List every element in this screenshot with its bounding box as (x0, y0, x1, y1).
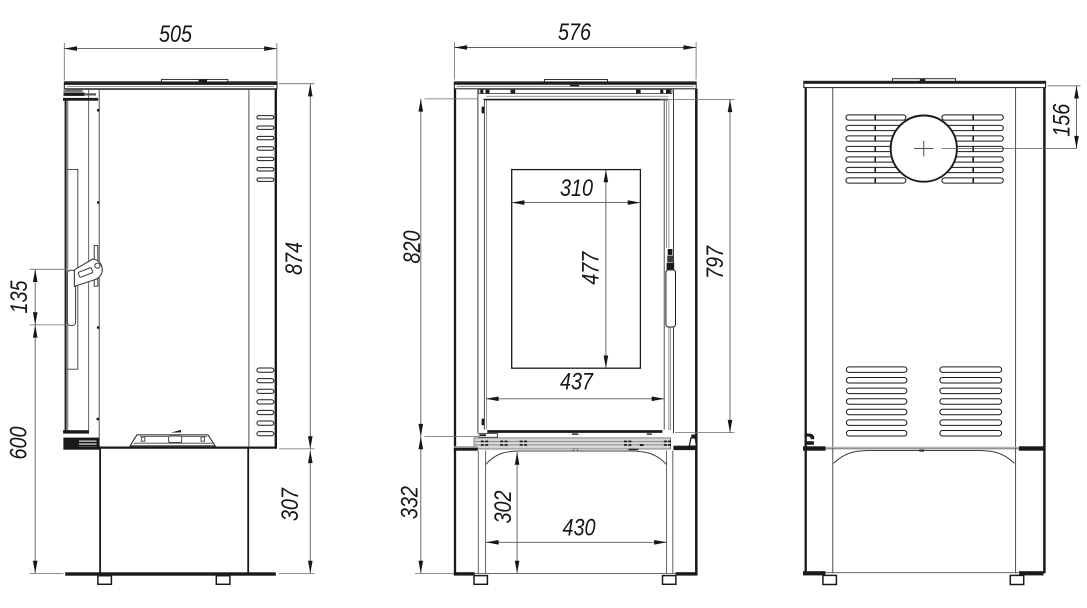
svg-text:135: 135 (6, 280, 33, 314)
svg-text:156: 156 (1048, 103, 1075, 137)
svg-text:332: 332 (397, 486, 424, 519)
svg-text:797: 797 (702, 245, 729, 279)
svg-text:302: 302 (490, 491, 517, 524)
svg-text:576: 576 (558, 19, 592, 46)
svg-text:430: 430 (563, 515, 597, 542)
svg-text:310: 310 (560, 175, 594, 202)
svg-text:874: 874 (281, 242, 308, 275)
svg-text:437: 437 (560, 369, 594, 396)
svg-text:820: 820 (399, 230, 426, 264)
svg-text:477: 477 (577, 250, 604, 284)
svg-text:505: 505 (159, 21, 193, 48)
svg-text:600: 600 (5, 426, 32, 460)
svg-text:307: 307 (277, 487, 304, 521)
